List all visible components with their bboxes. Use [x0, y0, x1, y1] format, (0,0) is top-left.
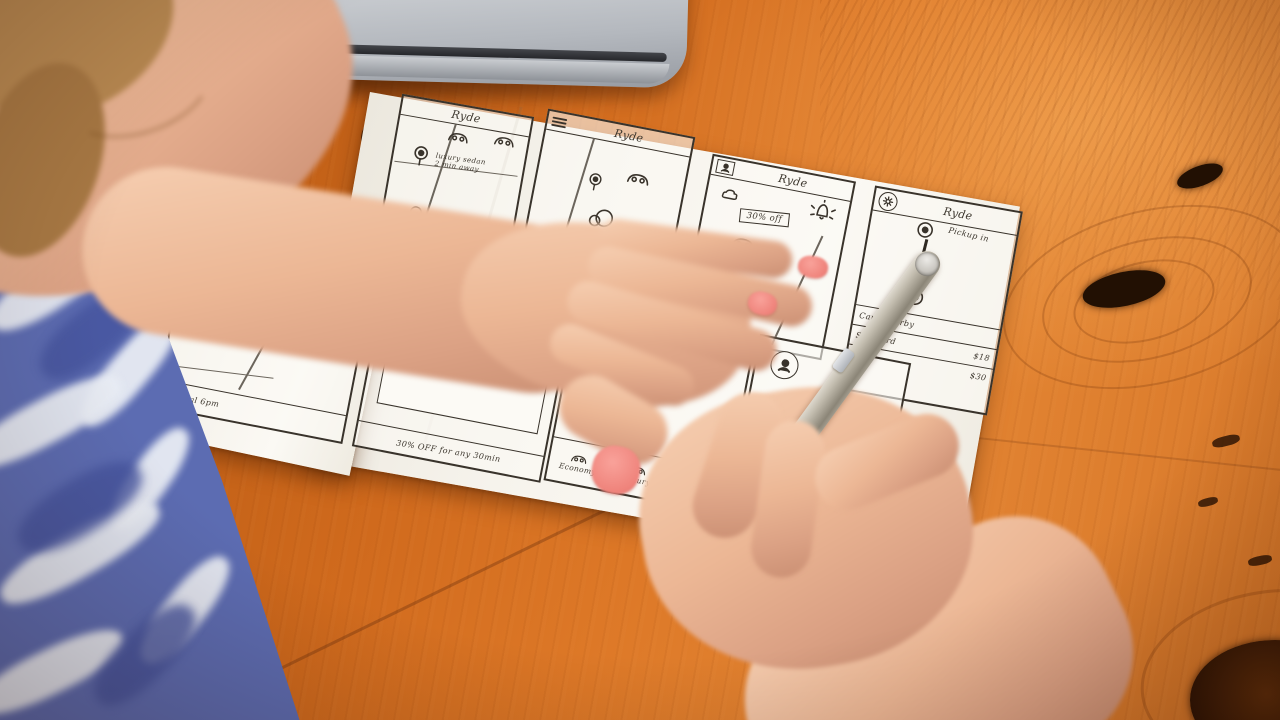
person-icon [777, 358, 792, 373]
promo-badge: 30% off [739, 208, 790, 227]
cloud-icon [720, 186, 742, 204]
photo-scene: Ryde luxury sedan 2 min away Ryde [0, 0, 1280, 720]
car-price: $18 [973, 351, 991, 363]
car-icon [625, 169, 651, 187]
hamburger-menu-icon [551, 115, 568, 129]
location-pin-icon [585, 172, 604, 193]
route-start-pin-icon [915, 219, 936, 240]
location-pin-icon [410, 145, 431, 168]
car-price: $30 [969, 371, 987, 383]
profile-box [715, 159, 735, 176]
notification-bell-icon [808, 198, 838, 227]
settings-circle [877, 190, 899, 212]
person-icon [720, 162, 731, 173]
gear-icon [882, 195, 895, 208]
map-annotation: luxury sedan 2 min away [434, 152, 496, 176]
car-icon [493, 132, 517, 149]
